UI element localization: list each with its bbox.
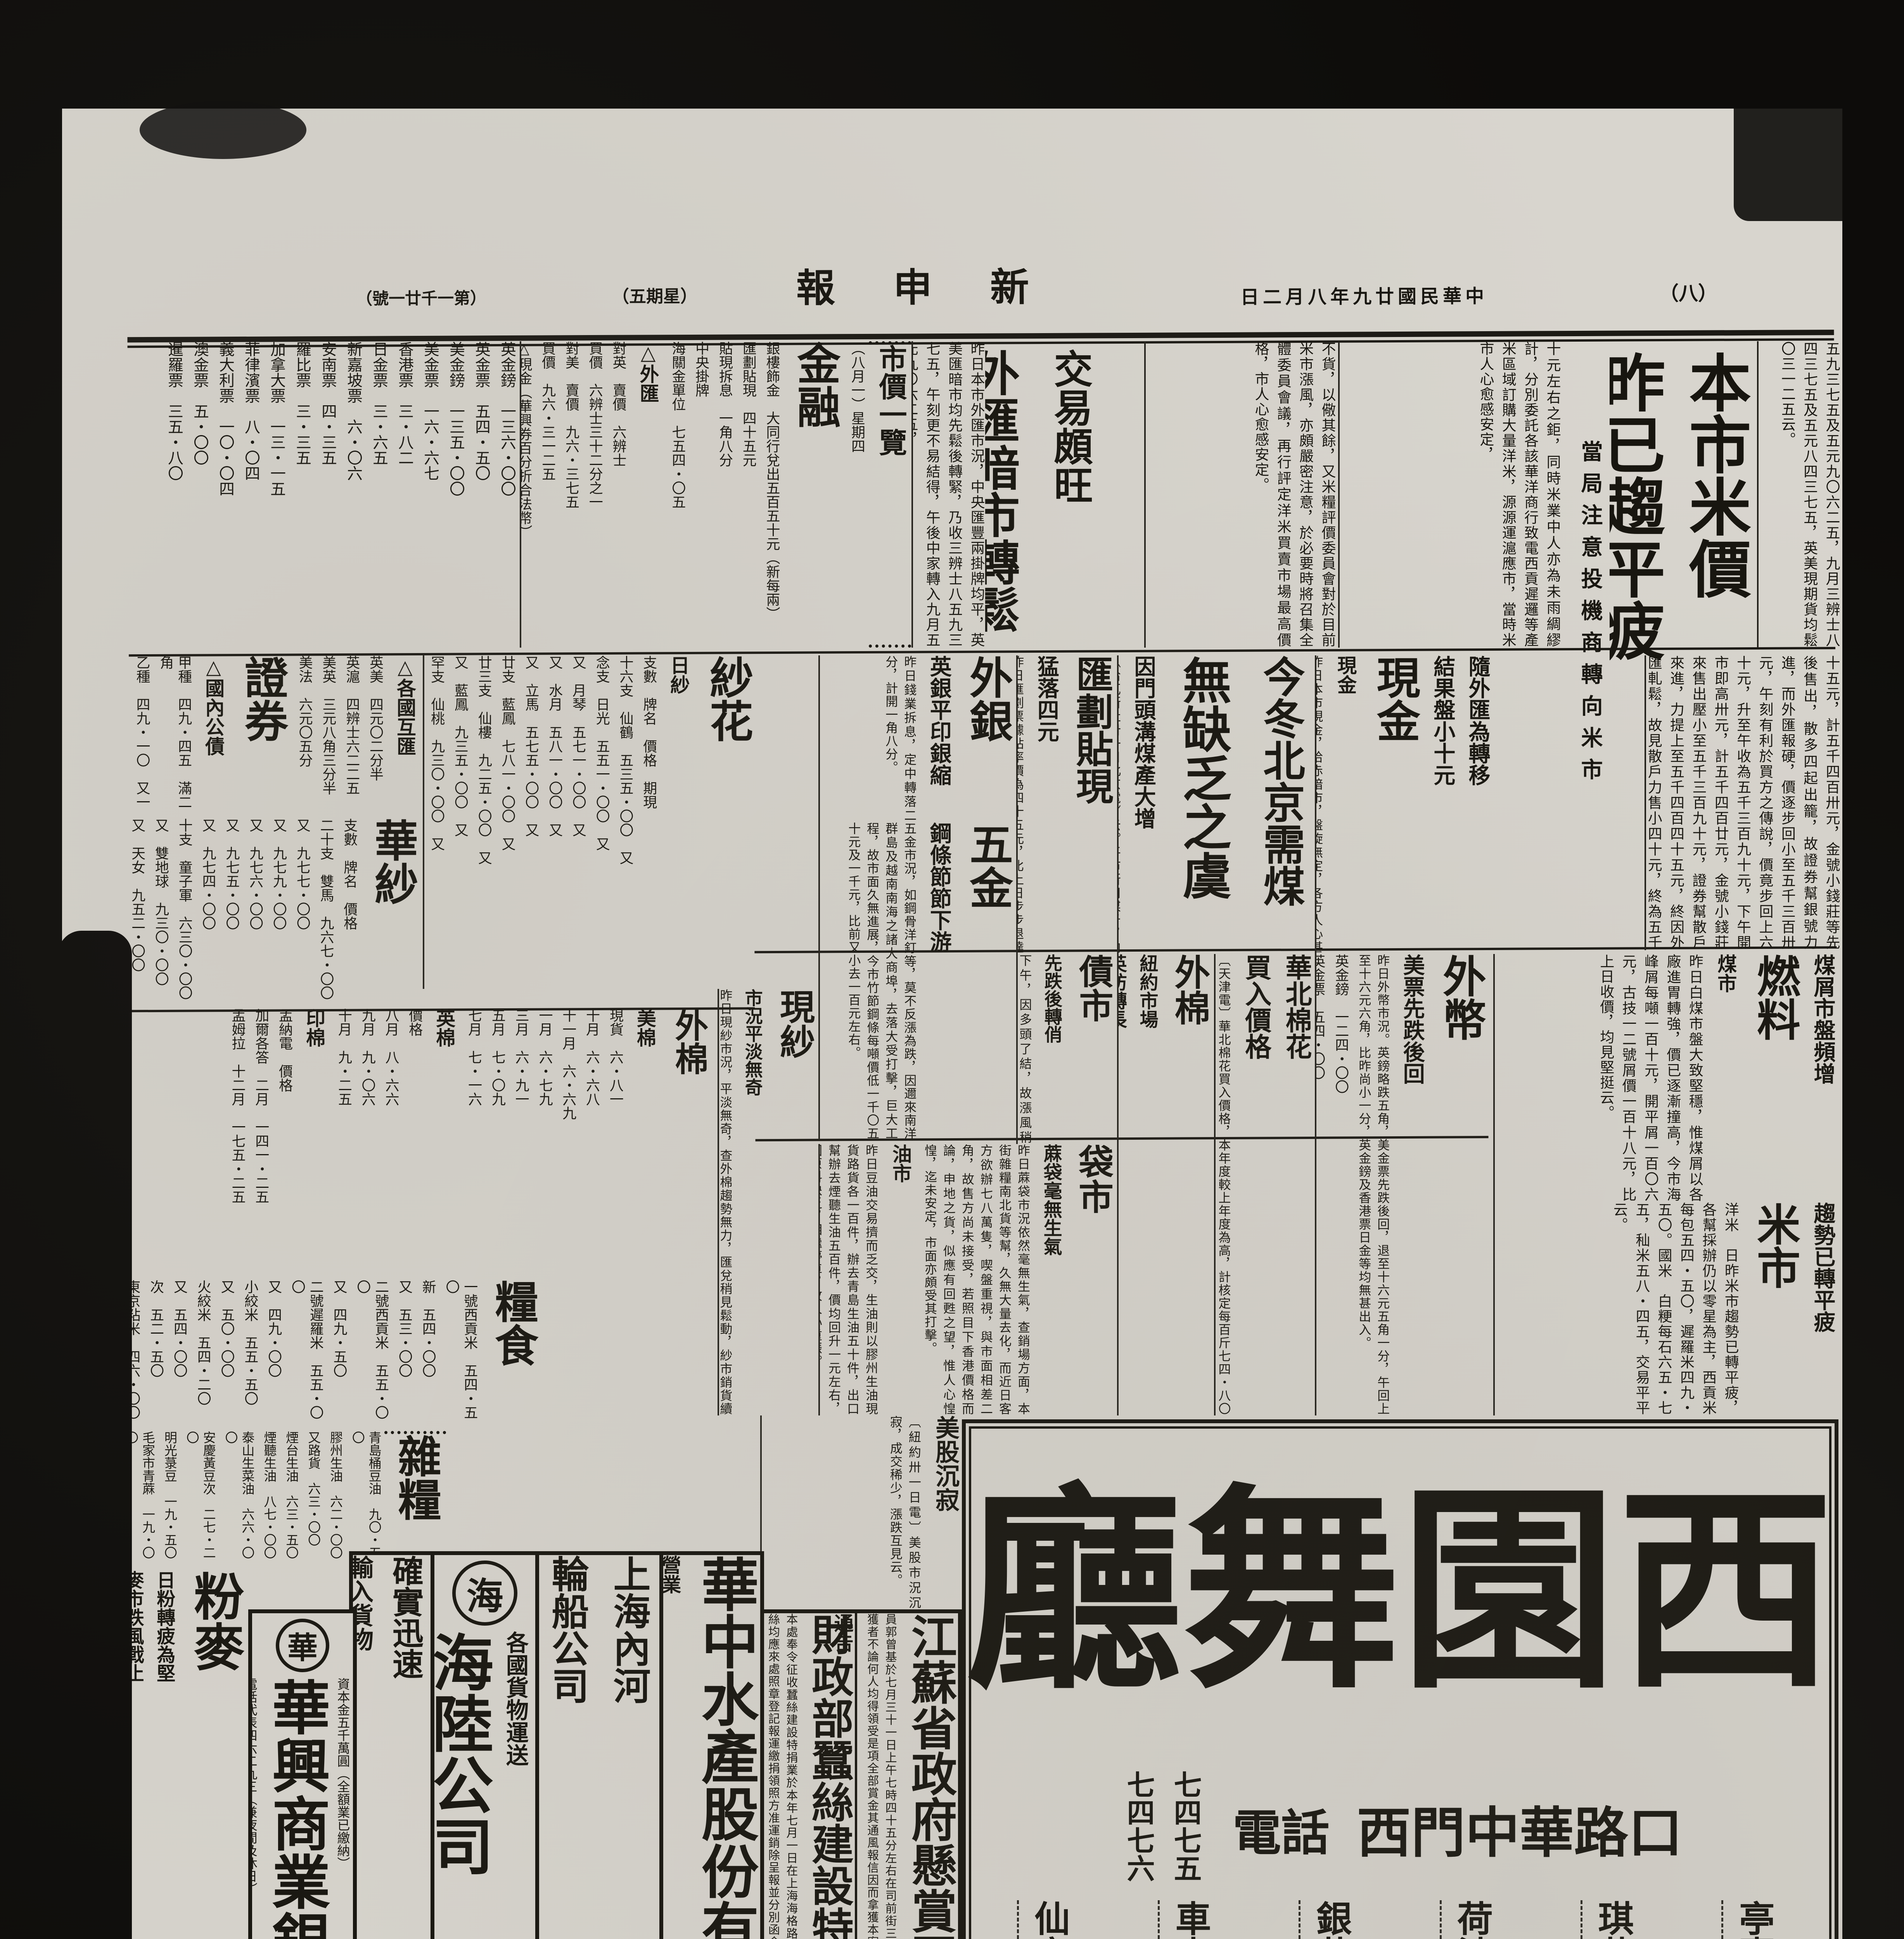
table-row: 對英 賣價 六辨士 — [607, 341, 630, 648]
waibi-header: 外幣 — [1429, 954, 1491, 1415]
hailu-title: 海陸公司 — [431, 1631, 495, 1939]
fx-body: 昨日本市外匯市況，中央匯豐兩掛牌均平，英美匯暗市均先鬆後轉緊，乃收三辨士八五九三… — [911, 341, 985, 648]
table-row: 十支 童子軍 六三〇・〇〇 — [173, 818, 196, 1008]
table-row: 廿支 藍鳳 七八一・〇〇 又 — [496, 655, 519, 989]
table-row: 念支 日光 五五一・〇〇 又 — [590, 655, 614, 989]
ad-neihe: 上海內河 輪船公司 船期通告 閔行葉榭早班 每晨七時蘇州無錫班 常州常熟班 每逢… — [535, 1551, 663, 1939]
liangshi-header: 糧食 — [481, 1280, 543, 1431]
table-row: 美金票 一六・六七 — [417, 341, 443, 648]
fenmai-section: 粉麥 日粉轉疲為堅 麥市跌風戰止 粉市 昨日現粉市況，跌勢已戢，同時內地雜粉一貨… — [132, 1571, 248, 1939]
table-row: 三月 六・九一 — [509, 1008, 533, 1280]
waibi-section: 外幣 美票先跌後回 昨日外幣市況。英鎊略跌五角，美金票先跌後回，退至十六元五角一… — [1315, 954, 1491, 1415]
huabei-cotton-section: 華北棉花 買入價格 〔天津電〕華北棉花買入價格，本年度較上年度為高，計核定每百斤… — [1214, 954, 1316, 1415]
risha-label: 日紗 — [661, 655, 696, 989]
xiyuan-phone-1: 七四七五 — [1165, 1770, 1205, 1887]
table-row: 買價 九六・三一二五 — [536, 341, 559, 648]
waihui-table: 對英 賣價 六辨士買價 六辨士三十二分之一對美 賣價 九六・三七五買價 九六・三… — [520, 341, 630, 648]
hailu-tagline: 各國貨物運送 — [495, 1631, 535, 1939]
jinrong-table: 銀樓飾金 大同行兌出五百五十元（新每兩）匯劃貼現 四十五元貼現拆息 一角八分中央… — [666, 341, 784, 648]
headline-rice-subhead: 當局注意投機商轉向米市 — [1567, 440, 1606, 871]
table-row: 澳金票 五・〇〇 — [187, 341, 213, 648]
table-row: 又 四九・五〇 — [327, 1280, 351, 1431]
xiyuan-title-char: 西 — [1617, 1485, 1835, 1702]
table-row: 孟姆拉 十二月 一七五・二五 — [226, 1008, 249, 1280]
table-row: 又路貨 六三・〇〇 — [302, 1431, 324, 1571]
xiansha-section: 現紗 市況平淡無奇 昨日現紗市況，平淡無奇，查外棉趨勢無力，匯兌稍見鬆動，紗市銷… — [718, 989, 820, 1415]
table-row: 一號西貢米 五四・五〇 — [440, 1280, 482, 1431]
fenmai-sub2: 麥市跌風戰止 — [132, 1571, 148, 1939]
huaxing-phone: 電話代表四六二九三（兼夜間及休日） — [248, 1678, 260, 1939]
table-row: 菲律濱票 八・〇四 — [238, 341, 264, 648]
liangshi-section: 糧食 一號西貢米 五四・五〇新 五四・〇〇又 五三・〇〇二號西貢米 五五・〇〇又… — [132, 1280, 543, 1431]
table-row: 香港票 三・八二 — [392, 341, 417, 648]
zhaishi-body: 下午，因多頭了結，故漲風稍戢，結果比上日漲起自五分至二角。〔同盟社卅一日東京電〕… — [1016, 954, 1036, 1144]
huasha-section: 華紗 支數 牌名 價格二十支 雙馬 九六七・〇〇又 九七七・〇〇又 九七九・〇〇… — [132, 818, 423, 1008]
slogan-column: 車水馬龍，如入五都市！ — [1158, 1900, 1220, 1939]
huidiao-body: 昨日匯劃票據貼率價為四十五元，比上日步步退達四元。午收比較，獨漲計一元一角，全日… — [1016, 655, 1029, 954]
rice-body-a: 十元左右之鉅，同時米業中人亦為未雨綢繆計，分別委託各該華洋商行致電西貢遲邏等產米… — [1338, 341, 1561, 648]
mishi-subhead: 趨勢已轉平疲 — [1805, 1202, 1840, 1415]
huabei-header1: 華北棉花 — [1276, 954, 1316, 1415]
table-row: 甲種 四九・四五 滿二角 — [154, 655, 196, 818]
table-row: 英金鎊 一三六・〇〇 — [494, 341, 520, 648]
table-row: 孟納電 價格 — [273, 1008, 296, 1280]
table-row: 美金鎊 一三五・〇〇 — [443, 341, 469, 648]
table-row: 東京粘米 四六・〇〇 — [132, 1280, 144, 1431]
meishi-label: 煤市 — [1708, 954, 1743, 1202]
table-row: 一月 六・七九 — [533, 1008, 557, 1280]
yin-cotton-label: 印棉 — [296, 1008, 332, 1280]
zhaishi-header: 債市 — [1067, 954, 1119, 1144]
fuel-subhead: 煤屑市盤頻增 — [1805, 954, 1840, 1202]
ad-higuchi: 確實迅速 輸入貨物 通關運送 樋口通關所 上海百老匯路第一八二弄（百祿坊）四五・… — [349, 1551, 434, 1939]
table-row: 小絞米 五五・五〇 — [239, 1280, 262, 1431]
xiyuan-title-char: 園 — [1400, 1485, 1617, 1702]
fuel-body: 昨日白煤市盤大致堅穩，惟煤屑以各廠進胃轉強，價已逐漸撞高，今市海峰屑每噸一百十元… — [1592, 954, 1708, 1202]
mishi-section: 趨勢已轉平疲 米市 洋米 日昨米市趨勢已轉平疲，各幫採辦仍以零星為主，西貢米每包… — [1493, 1202, 1840, 1415]
zhaishi-section: 債市 先跌後轉俏 下午，因多頭了結，故漲風稍戢，結果比上日漲起自五分至二角。〔同… — [1016, 954, 1119, 1144]
xiyuan-phone-2: 七四七六 — [1118, 1770, 1159, 1887]
table-row: 八月 八・六六 — [379, 1008, 403, 1280]
table-row: 又 雙地球 九三〇・〇〇 — [149, 818, 173, 1008]
xiansha-header: 現紗 — [768, 989, 820, 1415]
table-row: 又 四九・〇〇 — [262, 1280, 285, 1431]
table-row: 又 九七九・〇〇 — [267, 818, 291, 1008]
bond-table: 甲種 四九・四五 滿二角乙種 四九・一〇 又一元一丙種 四九・二〇 又五分丁種 … — [132, 655, 195, 818]
table-row: 安南票 四・三五 — [315, 341, 341, 648]
table-row: 安慶黃豆次 二七・二〇 — [180, 1431, 219, 1571]
xiansha-subhead: 市況平淡無奇 — [737, 989, 767, 1415]
table-row: 十六支 仙鶴 五三五・〇〇 又 — [614, 655, 637, 989]
table-row: 十一月 六・六九 — [556, 1008, 580, 1280]
page-number: （八） — [1659, 278, 1717, 306]
cash-body: 昨日本市現金，恰赤暗市，盤旋無定，各方人心甚悅，忽供求隨外匯緊鬆為轉移，晨開即升… — [1315, 655, 1328, 954]
huaxing-capital: 資本金五千萬圓（全額業已繳納） — [331, 1678, 353, 1939]
table-row: 英金鎊 一二四・〇〇 — [1329, 954, 1352, 1415]
table-row: 義大利票 一〇・〇四 — [213, 341, 238, 648]
wujin-section: 五金 鋼條節節下游 五金市況，如鋼骨洋釘等，莫不反漲為跌，因邇來南洋群島及越南南… — [818, 822, 1018, 1140]
waiyin-body: 昨日錢業拆息，定中轉落二分，計開一角八分。 — [879, 655, 921, 822]
ad-notices: 江蘇省政府懸賞國幣一萬元緝兇 員郭曾基於七月三十一日上午七時四十五分左右在司前街… — [760, 1609, 962, 1939]
xiyuan-title: 西 園 舞 廳 — [966, 1423, 1835, 1764]
waimian-header: 外棉 — [1162, 954, 1216, 1415]
neihe-title-2: 輪船公司 — [536, 1555, 598, 1939]
daishi-subhead: 蔴袋毫無生氣 — [1035, 1144, 1066, 1415]
coal-headline1: 今冬北京需煤 — [1243, 655, 1316, 954]
zhengquan-header: 證券 — [231, 655, 293, 818]
meigu-header: 美股沉寂 — [926, 1415, 963, 1609]
coal-subhead: 因門頭溝煤產大增 — [1126, 655, 1160, 954]
market-summary-section: 市價一覽 （八月一）星期四 金融 銀樓飾金 大同行兌出五百五十元（新每兩）匯劃貼… — [520, 341, 911, 648]
shahua-section: 紗花 日紗 支數 牌名 價格 期現十六支 仙鶴 五三五・〇〇 又念支 日光 五五… — [423, 655, 758, 989]
table-row: 罕支 仙桃 九三〇・〇〇 又 — [425, 655, 448, 989]
table-row: 煙台生油 六三・五〇 — [280, 1431, 302, 1571]
higuchi-top: 確實迅速 — [379, 1555, 431, 1939]
hailu-logo-icon: 海 — [452, 1561, 517, 1626]
waimian-sub1: 紐約市場 — [1131, 954, 1162, 1415]
xiyuan-phone-label: 電話 — [1233, 1794, 1330, 1864]
issue-number: （第一千廿一號） — [356, 285, 486, 309]
waimian-section: 外棉 紐約市場 英紡轉長 紐約市場，外棉趨勢無力，旋因遠東市場不定而轉軟，結果漲… — [1117, 954, 1216, 1415]
coal-headline2: 無缺乏之虞 — [1160, 655, 1243, 954]
table-row: 七月 七・一六 — [462, 1008, 486, 1280]
table-row: 新嘉坡票 六・〇六 — [341, 341, 366, 648]
table-row: 二號西貢米 五五・〇〇 — [351, 1280, 393, 1431]
cross-rates-table: 英美 四元〇二分半英滬 四辨士六二二五美英 三元八角三分半美法 六元〇五分 — [293, 655, 387, 818]
slogan-column: 銀花火樹，如看上元燈！ — [1299, 1900, 1361, 1939]
table-row: 又 九七七・〇〇 — [291, 818, 314, 1008]
table-row: 又 五四・〇〇 — [168, 1280, 191, 1431]
weekday: （星期五） — [612, 282, 697, 308]
cross-rates-label: △各國互匯 — [387, 655, 423, 818]
huazhong-title: 華中水產股份有限公司 — [688, 1555, 760, 1939]
table-row: 匯劃貼現 四十五元 — [737, 341, 760, 648]
jiangsu-tail: 通告 — [825, 1613, 860, 1939]
waihui-label: △外匯 — [630, 341, 666, 648]
table-row: 支數 牌名 價格 期現 — [637, 655, 661, 989]
table-row: 十月 九・二五 — [332, 1008, 356, 1280]
xiyuan-title-char: 廳 — [966, 1485, 1183, 1702]
table-row: 毛家市青蔴 一九・〇〇 — [132, 1431, 158, 1571]
xiyuan-title-char: 舞 — [1183, 1485, 1400, 1702]
cotton-tables: 外棉 美棉 現貨 六・八一十月 六・六八十一月 六・六九一月 六・七九三月 六・… — [132, 1008, 714, 1280]
ad-huaxing: 華 資本金五千萬圓（全額業已繳納） 華興商業銀行 電話代表四六二九三（兼夜間及休… — [248, 1609, 357, 1939]
table-row: 英金票 五四・五〇 — [469, 341, 494, 648]
bond-label: △國內公債 — [195, 655, 231, 818]
headline-fx-line1: 交易頗旺 — [1034, 349, 1105, 644]
daishi-body: 昨日蔴袋市況依然毫無生氣，查銷場方面，本街雜糧南北貨等幫，久無大量去化，而近日客… — [918, 1144, 1035, 1415]
cotton-label-big: 外棉 — [663, 1008, 714, 1280]
table-row: 支數 牌名 價格 — [337, 818, 361, 1008]
headline-fx: 交易頗旺 外匯暗市轉鬆 — [985, 349, 1105, 644]
scan-blotch-top-right — [1734, 58, 1904, 221]
ying-cotton-table: 價格八月 八・六六九月 九・〇六十月 九・二五 — [332, 1008, 426, 1280]
table-row: 對美 賣價 九六・三七五 — [559, 341, 583, 648]
table-row: 加爾各答 二月 一四一・二五 — [249, 1008, 273, 1280]
headline-fx-line2: 外匯暗市轉鬆 — [985, 349, 1034, 644]
fenmai-sub1: 日粉轉疲為堅 — [148, 1571, 180, 1939]
cash-header: 現金 — [1363, 655, 1425, 954]
huasha-table: 支數 牌名 價格二十支 雙馬 九六七・〇〇又 九七七・〇〇又 九七九・〇〇又 九… — [132, 818, 361, 1008]
mishi-body: 洋米 日昨米市趨勢已轉平疲，各幫採辦仍以零星為主，西貢米每包五四・五〇，遲羅米四… — [1605, 1202, 1743, 1415]
jinrong-header: 金融 — [784, 341, 846, 648]
table-row: 九月 九・〇六 — [356, 1008, 379, 1280]
mei-cotton-label: 美棉 — [627, 1008, 663, 1280]
currency-notes-table: 英金鎊 一三六・〇〇英金票 五四・五〇美金鎊 一三五・〇〇美金票 一六・六七香港… — [132, 341, 520, 648]
table-row: 二十支 雙馬 九六七・〇〇 — [314, 818, 338, 1008]
waiyin-section: 外銀 英銀平印銀縮 昨日錢業拆息，定中轉落二分，計開一角八分。 — [818, 655, 1018, 822]
table-row: 泰山生菜油 六六・〇〇 — [219, 1431, 258, 1571]
table-row: 貼現拆息 一角八分 — [713, 341, 737, 648]
ying-cotton-label: 英棉 — [426, 1008, 462, 1280]
table-row: 次 五二・五〇 — [144, 1280, 168, 1431]
table-row: △現金（華興券百分折合法幣） — [520, 341, 536, 648]
waibi-table: 英金鎊 一二四・〇〇英金票 五四・〇〇美金鎊 一二〇・〇〇美金票 一六・六〇香港… — [1315, 954, 1352, 1415]
scan-border-right — [1842, 0, 1904, 1939]
youshi-header: 油市 — [883, 1144, 918, 1415]
huaxing-logo-icon: 華 — [276, 1619, 329, 1672]
rice-body-b: 不貨，以儆其餘，又米糧評價委員會對於目前米市漲風，亦頗嚴密注意，於必要時將召集全… — [1144, 341, 1336, 648]
table-row: 英金票 五四・〇〇 — [1315, 954, 1329, 1415]
table-row: 膠州生油 六二・〇〇 — [324, 1431, 346, 1571]
neihe-title-1: 上海內河 — [598, 1555, 659, 1939]
table-row: 煙聽生油 八七・〇〇 — [258, 1431, 280, 1571]
table-row: 美英 三元八角三分半 — [316, 655, 340, 818]
slogan-column: 仙音妙奏，如聽霓裳曲！ — [1017, 1900, 1079, 1939]
liangshi-table: 一號西貢米 五四・五〇新 五四・〇〇又 五三・〇〇二號西貢米 五五・〇〇又 四九… — [132, 1280, 481, 1431]
zhaishi-subhead: 先跌後轉俏 — [1036, 954, 1067, 1144]
xiyuan-address: 西門中華路口 — [1357, 1789, 1683, 1868]
cash-sub1: 隨外匯為轉移 — [1460, 655, 1495, 954]
huabei-header2: 買入價格 — [1236, 954, 1276, 1415]
huidiao-subhead: 猛落四元 — [1029, 655, 1064, 954]
fx-story-tail: 五九三七五及五元九〇六二五，九月三辨士八四三七五及五元八四三七五，英美現期貨均鬆… — [1757, 341, 1840, 648]
table-row: 新 五四・〇〇 — [416, 1280, 440, 1431]
cash-section: 隨外匯為轉移 結果盤小十元 現金 現金 昨日本市現金，恰赤暗市，盤旋無定，各方人… — [1315, 655, 1495, 954]
slogan-column: 荷池碧沼，如泛西子湖！ — [1440, 1900, 1502, 1939]
table-row: 英滬 四辨士六二二五 — [340, 655, 363, 818]
paper-date: 中華民國廿九年八月二日 — [1240, 281, 1488, 309]
table-row: 五月 七・〇九 — [486, 1008, 509, 1280]
table-row: 又 五三・〇〇 — [393, 1280, 416, 1431]
ad-huazhong: 華中水產股份有限公司 營業 （一）生魚類藝賣市場之經營與水產物之賣買 （二）汽艇… — [659, 1551, 764, 1939]
slogan-column: 琪花瑤艸，如登王母山！ — [1581, 1900, 1643, 1939]
jiangsu-body: 員郭曾基於七月三十一日上午七時四十五分左右在司前街三多橋地方被三暴徒行刺傷重身死… — [860, 1613, 901, 1939]
table-row: 日金票 三・六五 — [366, 341, 392, 648]
scan-blotch-top-left — [140, 101, 306, 159]
xiansha-body: 昨日現紗市況，平淡無奇，查外棉趨勢無力，匯兌稍見鬆動，紗市銷貨續見沉悶，客銷僅有… — [718, 989, 737, 1415]
ad-jiangsu: 江蘇省政府懸賞國幣一萬元緝兇 員郭曾基於七月三十一日上午七時四十五分左右在司前街… — [855, 1613, 958, 1939]
table-row: 廿三支 仙樓 九二五・〇〇 又 — [472, 655, 496, 989]
waimian-sub2: 英紡轉長 — [1117, 954, 1131, 1415]
waiyin-subhead: 英銀平印銀縮 — [921, 655, 956, 822]
table-row: 又 水月 五八一・〇〇 又 — [543, 655, 566, 989]
table-row: 明光菉豆 一九・五〇 — [158, 1431, 180, 1571]
coal-headline-section: 今冬北京需煤 無缺乏之虞 因門頭溝煤產大增 〔哈瓦斯社卅一日北京電〕云。平市所用… — [1117, 655, 1316, 954]
table-row: 英美 四元〇二分半 — [363, 655, 387, 818]
wujin-body: 五金市況，如鋼骨洋釘等，莫不反漲為跌，因邇來南洋群島及越南南海之諸大商埠，去落大… — [842, 822, 921, 1140]
shijia-header: 市價一覽 — [869, 341, 911, 648]
ad-xiyuan: 西 園 舞 廳 西門中華路口 電話 七四七五 七四七六 亭臺樓閣，如進阿房宮！ … — [962, 1419, 1838, 1939]
cash-sub2: 結果盤小十元 — [1425, 655, 1460, 954]
slogan-column: 亭臺樓閣，如進阿房宮！ — [1721, 1900, 1783, 1939]
huidiao-section: 匯劃貼現 猛落四元 昨日匯劃票據貼率價為四十五元，比上日步步退達四元。午收比較，… — [1016, 655, 1119, 954]
table-row: 暹羅票 三五・八〇 — [161, 341, 187, 648]
zhengquan-section: △各國互匯 英美 四元〇二分半英滬 四辨士六二二五美英 三元八角三分半美法 六元… — [132, 655, 423, 818]
fuel-header: 燃料 — [1743, 954, 1805, 1202]
ad-hailu: 海 各國貨物運送 海陸公司 洽 營業課 上海密勒路八一號閔行路七九・八三 電話 … — [431, 1551, 539, 1939]
waibi-subhead: 美票先跌後回 — [1394, 954, 1429, 1415]
huidiao-header: 匯劃貼現 — [1064, 655, 1119, 954]
daishi-header: 袋市 — [1066, 1144, 1119, 1415]
fuel-section: 煤屑市盤頻增 燃料 煤市 昨日白煤市盤大致堅穩，惟煤屑以各廠進胃轉強，價已逐漸撞… — [1493, 954, 1840, 1202]
table-row: 又 月琴 五七一・〇〇 又 — [566, 655, 590, 989]
cash-label: 現金 — [1328, 655, 1363, 954]
scan-border-top — [0, 0, 1904, 109]
table-row: 中央掛牌 — [689, 341, 713, 648]
table-row: 買價 六辨士三十二分之一 — [583, 341, 607, 648]
mei-cotton-table: 現貨 六・八一十月 六・六八十一月 六・六九一月 六・七九三月 六・九一五月 七… — [462, 1008, 627, 1280]
yin-cotton-table: 孟納電 價格加爾各答 二月 一四一・二五孟姆拉 十二月 一七五・二五 — [226, 1008, 296, 1280]
xiyuan-slogans: 亭臺樓閣，如進阿房宮！ 琪花瑤艸，如登王母山！ 荷池碧沼，如泛西子湖！ 銀花火樹… — [966, 1892, 1835, 1939]
zaliang-section: 雜糧 青島桶豆油 九〇・五〇膠州生油 六二・〇〇又路貨 六三・〇〇煙台生油 六三… — [132, 1431, 446, 1571]
caizheng-body: 本處奉令征收蠶絲建設特捐業於本年七月一日在上海海格路六五一號稅務署內設處辦公並於… — [761, 1613, 802, 1939]
table-row: 現貨 六・八一 — [604, 1008, 627, 1280]
paper-title: 新申報 — [728, 255, 1155, 313]
table-row: 十月 六・六八 — [580, 1008, 604, 1280]
table-row: 又 立馬 五七五・〇〇 又 — [519, 655, 543, 989]
scan-border-left — [0, 0, 62, 1939]
huaxing-title: 華興商業銀行 — [260, 1678, 331, 1939]
mishi-header: 米市 — [1743, 1202, 1805, 1415]
table-row: 銀樓飾金 大同行兌出五百五十元（新每兩） — [760, 341, 784, 648]
newspaper-page-scan: （第一千廿一號） （星期五） 新申報 中華民國廿九年八月二日 （八） 五九三七五… — [0, 0, 1904, 1939]
bag-oil-bean-row: 袋市 蔴袋毫無生氣 昨日蔴袋市況依然毫無生氣，查銷場方面，本街雜糧南北貨等幫，久… — [818, 1144, 1119, 1415]
wujin-subhead: 鋼條節節下游 — [921, 822, 956, 1140]
shijia-date: （八月一）星期四 — [845, 341, 869, 648]
waibi-body: 昨日外幣市況。英鎊略跌五角，美金票先跌後回，退至十六元五角一分，午回上至十六元六… — [1352, 954, 1394, 1415]
table-row: 海關金單位 七五四・〇五 — [666, 341, 690, 648]
table-row: 二號遲羅米 五五・〇〇 — [285, 1280, 327, 1431]
table-row: 又 藍鳳 九三五・〇〇 又 — [448, 655, 472, 989]
table-row: 又 天女 九五二・〇〇 — [132, 818, 149, 1008]
briefs-section: 美股沉寂 〔紐約卅一日電〕美股市況沉寂，成交稀少，漲跌互見云。 — [760, 1415, 963, 1609]
youshi-body: 昨日豆油交易擠而乏交，生油則以膠州生油現貨路貨各一百件，辦去青島生油五十件，出口… — [818, 1144, 883, 1415]
table-row: 又 九七四・〇〇 — [196, 818, 220, 1008]
table-row: 羅比票 三・三五 — [289, 341, 315, 648]
huabei-body: 〔天津電〕華北棉花買入價格，本年度較上年度為高，計核定每百斤七四・八〇至七六・五… — [1214, 954, 1236, 1415]
jiangsu-title: 江蘇省政府懸賞國幣一萬元緝兇 — [901, 1613, 958, 1939]
table-row: 青島桶豆油 九〇・五〇 — [346, 1431, 385, 1571]
table-row: 又 九七六・〇〇 — [243, 818, 267, 1008]
zaliang-header: 雜糧 — [384, 1431, 446, 1571]
zaliang-table: 青島桶豆油 九〇・五〇膠州生油 六二・〇〇又路貨 六三・〇〇煙台生油 六三・五〇… — [132, 1431, 384, 1571]
scan-shadow-left — [58, 931, 132, 1939]
table-row: 火絞米 五四・二〇 — [191, 1280, 215, 1431]
shahua-header: 紗花 — [696, 655, 758, 989]
meigu-body: 〔紐約卅一日電〕美股市況沉寂，成交稀少，漲跌互見云。 — [884, 1415, 926, 1609]
huasha-header: 華紗 — [361, 818, 423, 1008]
wujin-header: 五金 — [956, 822, 1018, 1140]
table-row: 美法 六元〇五分 — [293, 655, 316, 818]
table-row: 又 五〇・〇〇 — [215, 1280, 239, 1431]
waiyin-header: 外銀 — [956, 655, 1018, 822]
table-row: 又 九七五・〇〇 — [220, 818, 244, 1008]
table-row: 價格 — [403, 1008, 426, 1280]
fenmai-header: 粉麥 — [179, 1571, 248, 1939]
risha-table: 支數 牌名 價格 期現十六支 仙鶴 五三五・〇〇 又念支 日光 五五一・〇〇 又… — [425, 655, 661, 989]
table-row: 加拿大票 一三・一五 — [264, 341, 289, 648]
huazhong-label: 營業 — [659, 1555, 688, 1939]
rice-body-c: 十五元，計五千四百卅元，金號小錢莊等先後售出，散多四起出籠，故證券幫銀號力進，而… — [1645, 655, 1840, 950]
table-row: 乙種 四九・一〇 又一元一 — [132, 655, 154, 818]
